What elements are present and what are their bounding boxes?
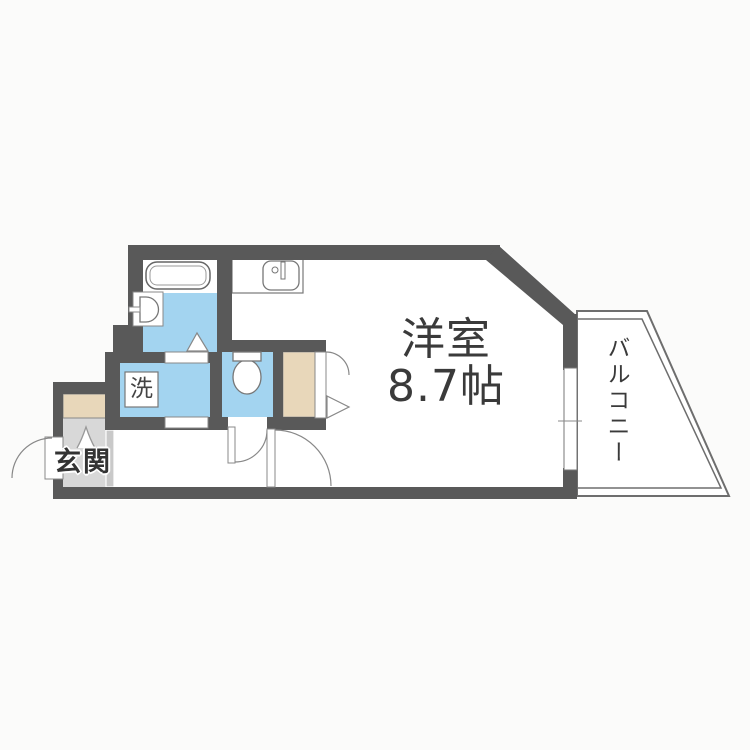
wall-entrance-top (53, 382, 120, 394)
closet-floor (283, 352, 315, 417)
washroom-door-bar (165, 417, 208, 428)
toilet-icon (233, 360, 261, 394)
balcony-label: バルコニー (599, 336, 633, 466)
wall-right-upper (563, 314, 577, 370)
window (564, 368, 577, 470)
main-room-label: 洋室 8.7帖 (330, 316, 562, 410)
wall-toilet-closet-mid (273, 352, 283, 418)
washbasin-icon (140, 297, 158, 322)
main-room-name: 洋室 (330, 316, 562, 363)
entrance-label: 玄関 (54, 440, 112, 479)
shoe-cabinet (63, 394, 106, 418)
wall-kitchen-divider (217, 258, 232, 352)
toilet-tank (233, 352, 261, 361)
laundry-label: 洗 (125, 372, 158, 407)
wall-block-bottom (210, 417, 326, 430)
closet-door-strip (315, 352, 326, 418)
washbasin-handle (129, 307, 140, 312)
main-room-door-panel (267, 429, 275, 487)
toilet-door-panel (228, 427, 235, 463)
main-room-size: 8.7帖 (330, 363, 562, 410)
floorplan: 洋室 8.7帖 バルコニー 玄関 洗 (0, 0, 750, 750)
bathroom-door-bar (165, 352, 208, 363)
wall-top (128, 245, 500, 260)
wall-bottom (53, 487, 577, 499)
wall-toilet-block-top (217, 340, 326, 352)
sink-faucet (281, 262, 285, 279)
sink-drain (272, 267, 278, 273)
